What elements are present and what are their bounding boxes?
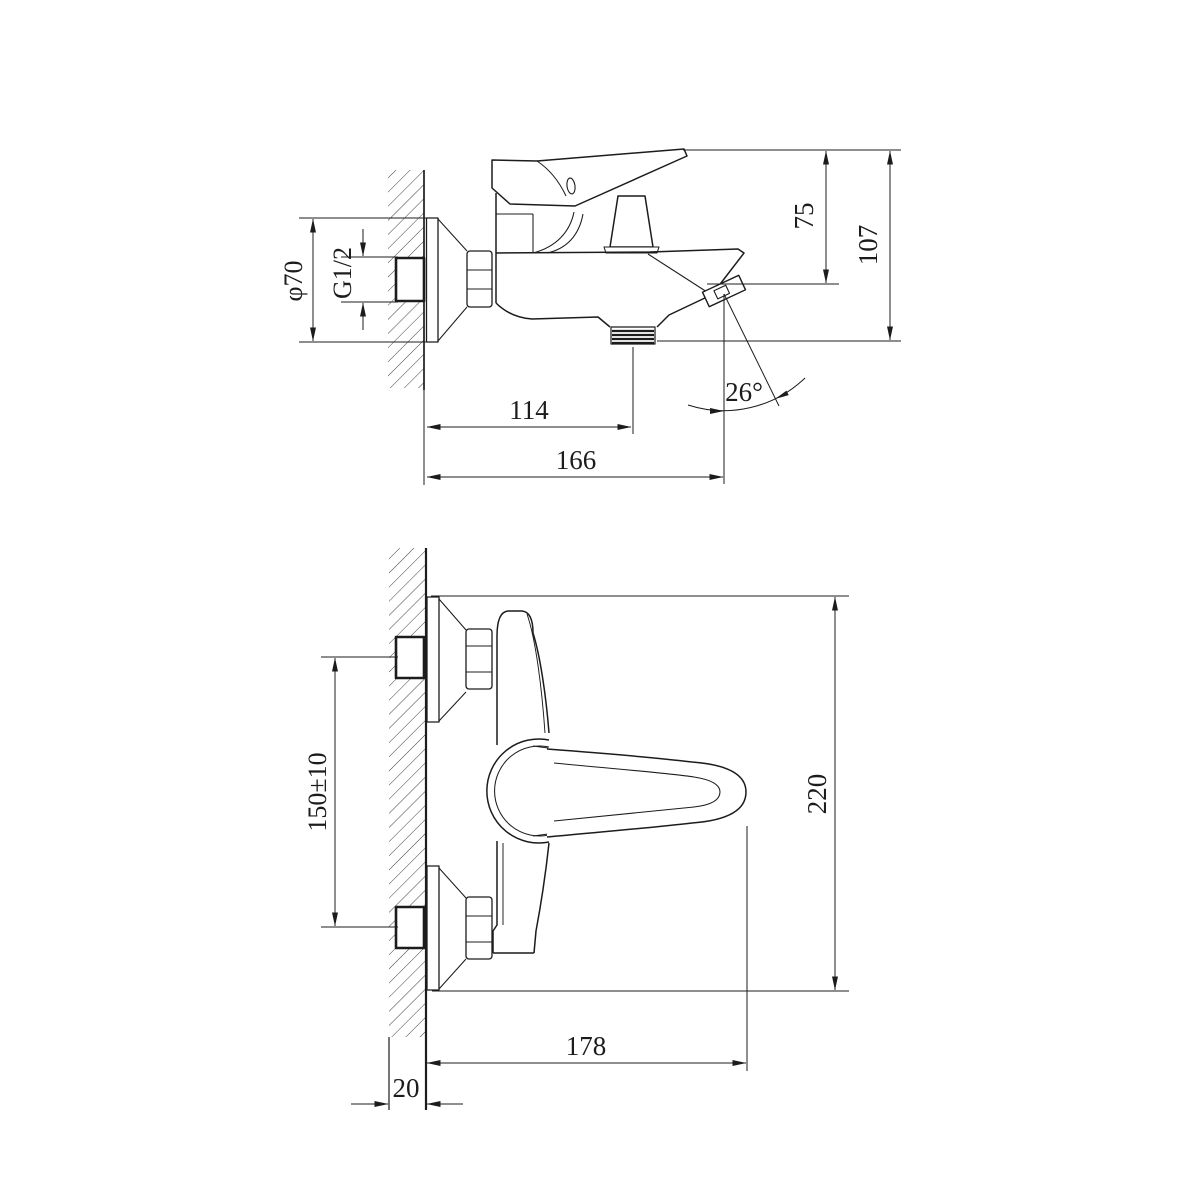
dim-107-label: 107 [853, 225, 883, 266]
handle-dome-outer [487, 739, 549, 843]
dim-20-label: 20 [393, 1073, 420, 1103]
side-view: φ70 G1/2 75 107 114 166 26° [279, 149, 901, 485]
dim-178-label: 178 [566, 1031, 607, 1061]
dim-phi70-label: φ70 [279, 260, 308, 301]
dim-g12-label: G1/2 [328, 247, 357, 299]
dim-166-label: 166 [556, 445, 597, 475]
technical-drawing-page: φ70 G1/2 75 107 114 166 26° [0, 0, 1200, 1200]
lower-flange-cone [439, 868, 466, 989]
front-view: 150±10 220 178 20 [303, 548, 849, 1110]
pipe-stub-side [396, 258, 424, 301]
handle-lever-front [547, 749, 746, 837]
handle-dome-inner [495, 746, 549, 836]
dome-junction-steps [533, 746, 548, 836]
diverter-knob [610, 196, 653, 247]
wall-hatch-front [389, 548, 426, 1037]
dimensions-front: 150±10 220 178 20 [303, 596, 849, 1104]
lower-mounting-nut [466, 897, 492, 959]
faucet-installation-drawing: φ70 G1/2 75 107 114 166 26° [0, 0, 1200, 1200]
body-column-panel-lines [496, 214, 533, 253]
flange-plate-side [427, 218, 439, 342]
angle-arrow-left [710, 408, 724, 414]
upper-mounting-nut [466, 629, 492, 689]
body-upper-front [497, 611, 549, 745]
shower-outlet-thread [611, 327, 655, 344]
upper-flange-plate [427, 597, 439, 722]
body-neck-curves [533, 212, 583, 253]
spout-interior-line [648, 254, 707, 292]
upper-pipe-stub [396, 637, 424, 678]
ext-150 [321, 657, 398, 927]
spout-underside-left [496, 303, 610, 327]
dim-114-label: 114 [509, 395, 549, 425]
faucet-body-side [492, 149, 746, 344]
wall-section-side [388, 170, 424, 485]
dim-220-label: 220 [802, 774, 832, 815]
upper-flange-cone [439, 599, 466, 721]
dim-150-label: 150±10 [303, 752, 332, 831]
flange-cone-side [438, 219, 467, 341]
lower-flange-plate [427, 866, 439, 990]
mounting-nut-side [467, 251, 492, 307]
faucet-body-front [487, 611, 746, 953]
body-lower-front [493, 841, 549, 953]
wall-section-front [389, 548, 426, 1110]
lower-pipe-stub [396, 907, 424, 948]
spout-top-edge [496, 249, 744, 296]
angle-arrow-right [775, 391, 789, 399]
spout-underside-right [657, 297, 707, 327]
dim-75-label: 75 [789, 203, 819, 230]
dim-26deg-label: 26° [725, 377, 763, 407]
handle-side [492, 149, 687, 206]
